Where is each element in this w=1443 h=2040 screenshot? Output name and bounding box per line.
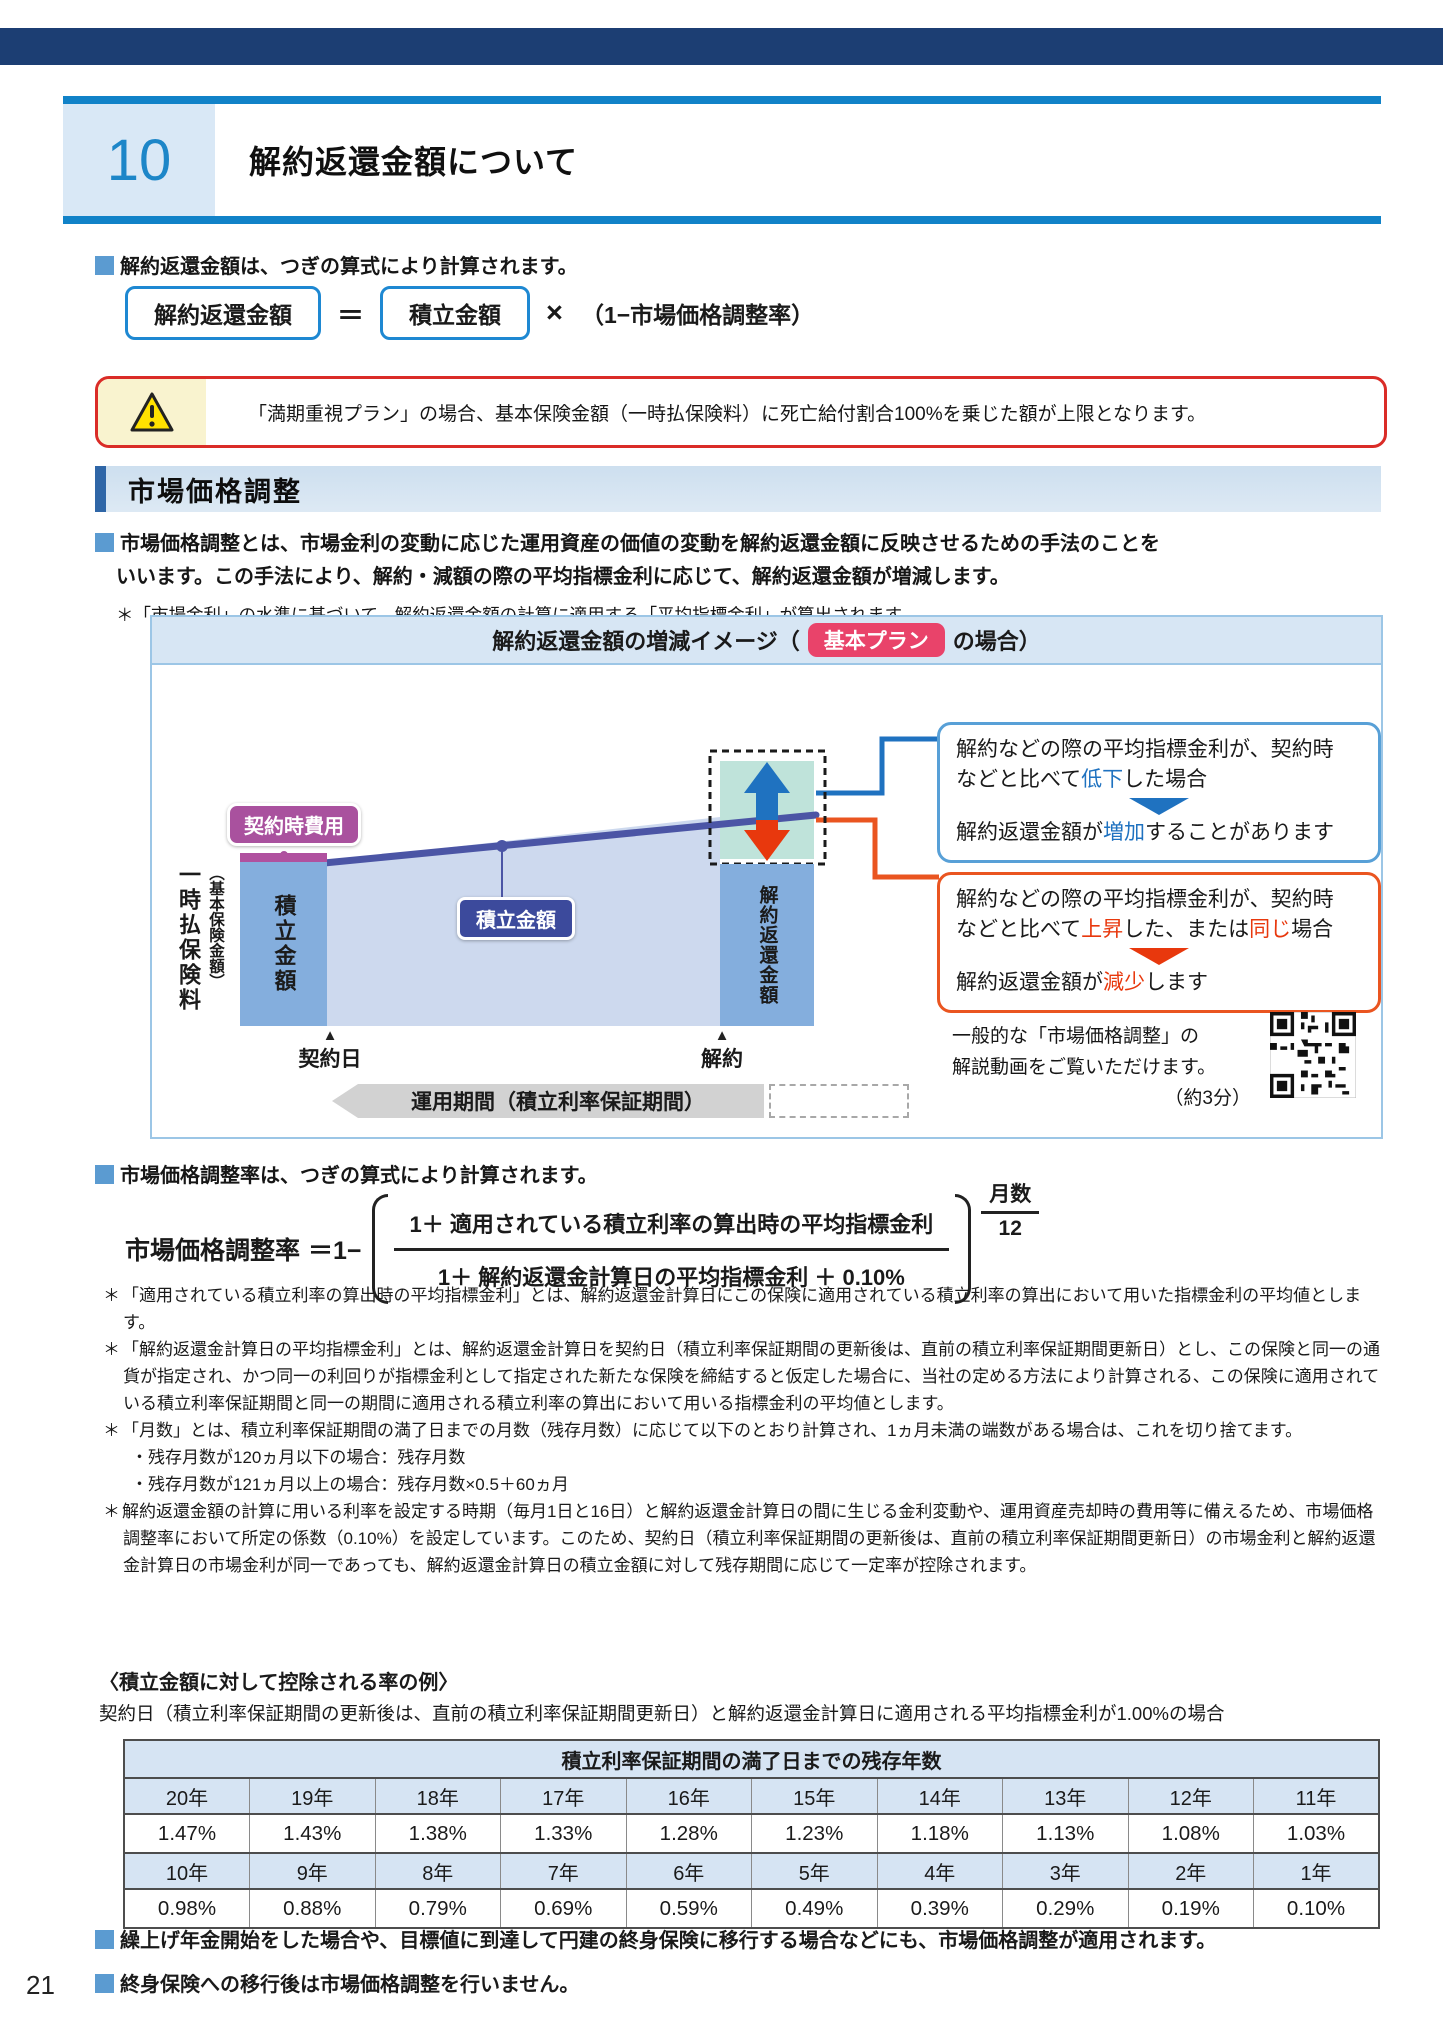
table-row: 10年 9年 8年 7年 6年 5年 4年 3年 2年 1年: [124, 1853, 1379, 1889]
mva-intro-line1: 市場価格調整とは、市場金利の変動に応じた運用資産の価値の変動を解約返還金額に反映…: [95, 528, 1381, 561]
chapter-number-box: 10: [63, 104, 215, 216]
notes-list: ＊「適用されている積立利率の算出時の平均指標金利」とは、解約返還金計算日にこの保…: [103, 1282, 1381, 1579]
formula-rhs-box: 積立金額: [380, 286, 530, 340]
table-cell: 0.29%: [1003, 1889, 1129, 1928]
footer-notes: 繰上げ年金開始をした場合や、目標値に到達して円建の終身保険に移行する場合などにも…: [95, 1926, 1216, 2014]
table-cell: 2年: [1128, 1853, 1254, 1889]
contract-cost-strip: [240, 853, 327, 862]
surrender-formula: 解約返還金額 ＝ 積立金額 × （1−市場価格調整率）: [125, 286, 814, 340]
note-item: ＊「月数」とは、積立利率保証期間の満了日までの月数（残存月数）に応じて以下のとお…: [103, 1417, 1381, 1498]
table-cell: 17年: [501, 1778, 627, 1814]
exponent-denominator: 12: [981, 1214, 1039, 1241]
rate-down-callout: 解約などの際の平均指標金利が、契約時 などと比べて低下した場合 解約返還金額が増…: [937, 722, 1381, 863]
formula-lhs-box: 解約返還金額: [125, 286, 321, 340]
contract-date-label: 契約日: [294, 1043, 366, 1073]
table-cell: 1.28%: [626, 1814, 752, 1853]
contract-date-triangle-icon: ▲: [294, 1028, 366, 1043]
note-item: ＊「適用されている積立利率の算出時の平均指標金利」とは、解約返還金計算日にこの保…: [103, 1282, 1381, 1336]
callout-up-result: 解約返還金額が減少します: [956, 968, 1362, 998]
rate-formula-intro-text: 市場価格調整率は、つぎの算式により計算されます。: [120, 1165, 598, 1187]
callout-down-result: 解約返還金額が増加することがあります: [956, 818, 1362, 848]
table-cell: 15年: [752, 1778, 878, 1814]
video-note-line1: 一般的な「市場価格調整」の: [952, 1021, 1257, 1052]
table-cell: 1.23%: [752, 1814, 878, 1853]
table-cell: 4年: [877, 1853, 1003, 1889]
note-item: ＊「解約返還金計算日の平均指標金利」とは、解約返還金計算日を契約日（積立利率保証…: [103, 1336, 1381, 1417]
up-arrow-shaft: [756, 791, 778, 820]
table-cell: 0.39%: [877, 1889, 1003, 1928]
premium-label: 一時払保険料: [172, 863, 204, 1033]
warning-triangle-icon: [129, 391, 175, 433]
period-dashed-extension: [769, 1084, 909, 1118]
video-note: 一般的な「市場価格調整」の 解説動画をご覧いただけます。 （約3分）: [952, 1021, 1257, 1114]
section-banner: 市場価格調整: [95, 466, 1381, 512]
callout-up-line1: 解約などの際の平均指標金利が、契約時: [956, 885, 1362, 915]
bullet-square-icon: [95, 1165, 114, 1184]
table-title-row: 積立利率保証期間の満了日までの残存年数: [124, 1740, 1379, 1778]
formula-tail: （1−市場価格調整率）: [581, 296, 814, 330]
bullet-square-icon: [95, 533, 114, 552]
warning-text: 「満期重視プラン」の場合、基本保険金額（一時払保険料）に死亡給付割合100%を乗…: [206, 379, 1384, 445]
table-cell: 3年: [1003, 1853, 1129, 1889]
account-bar-label: 積立金額: [268, 894, 300, 994]
intro-text: 解約返還金額は、つぎの算式により計算されます。: [120, 256, 578, 278]
table-cell: 1.33%: [501, 1814, 627, 1853]
rate-up-callout: 解約などの際の平均指標金利が、契約時 などと比べて上昇した、または同じ場合 解約…: [937, 872, 1381, 1013]
table-cell: 0.19%: [1128, 1889, 1254, 1928]
surrender-diagram: 解約返還金額の増減イメージ（ 基本プラン の場合）: [150, 615, 1383, 1139]
table-row: 1.47% 1.43% 1.38% 1.33% 1.28% 1.23% 1.18…: [124, 1814, 1379, 1853]
rate-formula-label: 市場価格調整率: [125, 1231, 300, 1267]
formula-multiply-sign: ×: [546, 297, 563, 330]
table-cell: 1.38%: [375, 1814, 501, 1853]
callout-down-line2: などと比べて低下した場合: [956, 765, 1362, 795]
warning-box: 「満期重視プラン」の場合、基本保険金額（一時払保険料）に死亡給付割合100%を乗…: [95, 376, 1387, 448]
contract-date-marker: ▲ 契約日: [294, 1028, 366, 1073]
note-item: ＊解約返還金額の計算に用いる利率を設定する時期（毎月1日と16日）と解約返還金計…: [103, 1498, 1381, 1579]
note-sub-item: ・残存月数が121ヵ月以上の場合：残存月数×0.5＋60ヵ月: [123, 1471, 1381, 1498]
callout-down-line1: 解約などの際の平均指標金利が、契約時: [956, 735, 1362, 765]
red-result-arrow-icon: [1129, 948, 1189, 965]
diagram-title-post: の場合）: [953, 624, 1041, 656]
table-row: 0.98% 0.88% 0.79% 0.69% 0.59% 0.49% 0.39…: [124, 1889, 1379, 1928]
table-title: 積立利率保証期間の満了日までの残存年数: [124, 1740, 1379, 1778]
diagram-body: 積立金額 解約返還金額 一時払保険料 （基本保険金額） 契約時費用 積立金額 ▲…: [152, 665, 1381, 1137]
table-cell: 19年: [250, 1778, 376, 1814]
table-cell: 12年: [1128, 1778, 1254, 1814]
table-cell: 9年: [250, 1853, 376, 1889]
bullet-square-icon: [95, 256, 114, 275]
rate-formula-equals: ＝1−: [308, 1231, 362, 1267]
account-value-badge: 積立金額: [457, 897, 575, 940]
red-callout-connector: [816, 820, 939, 877]
surrender-bar-label: 解約返還金額: [754, 885, 781, 1005]
table-cell: 0.88%: [250, 1889, 376, 1928]
footer-note-line: 繰上げ年金開始をした場合や、目標値に到達して円建の終身保険に移行する場合などにも…: [95, 1926, 1216, 1956]
note-sub-item: ・残存月数が120ヵ月以下の場合：残存月数: [123, 1444, 1381, 1471]
section-title: 市場価格調整: [128, 470, 302, 509]
table-cell: 14年: [877, 1778, 1003, 1814]
bullet-square-icon: [95, 1974, 114, 1993]
document-page: { "page_number": "21", "chapter": { "num…: [0, 0, 1443, 2040]
exponent-fraction: 月数 12: [981, 1178, 1039, 1241]
diagram-title: 解約返還金額の増減イメージ（ 基本プラン の場合）: [152, 617, 1381, 665]
premium-label-group: 一時払保険料 （基本保険金額）: [172, 863, 226, 1033]
contract-cost-badge: 契約時費用: [227, 803, 361, 846]
table-cell: 5年: [752, 1853, 878, 1889]
surrender-date-marker: ▲ 解約: [686, 1028, 758, 1073]
table-cell: 11年: [1254, 1778, 1380, 1814]
mva-intro-line2: いいます。この手法により、解約・減額の際の平均指標金利に応じて、解約返還金額が増…: [95, 561, 1381, 594]
bullet-square-icon: [95, 1930, 114, 1949]
table-cell: 1.08%: [1128, 1814, 1254, 1853]
table-cell: 1.13%: [1003, 1814, 1129, 1853]
callout-up-line2: などと比べて上昇した、または同じ場合: [956, 915, 1362, 945]
footer-note-line: 終身保険への移行後は市場価格調整を行いません。: [95, 1970, 1216, 2000]
mva-intro-text1: 市場価格調整とは、市場金利の変動に応じた運用資産の価値の変動を解約返還金額に反映…: [120, 533, 1160, 555]
table-cell: 16年: [626, 1778, 752, 1814]
video-note-line2: 解説動画をご覧いただけます。: [952, 1052, 1257, 1083]
premium-sub-label: （基本保険金額）: [204, 865, 226, 1033]
table-cell: 1.47%: [124, 1814, 250, 1853]
table-cell: 0.98%: [124, 1889, 250, 1928]
surrender-date-triangle-icon: ▲: [686, 1028, 758, 1043]
intro-line: 解約返還金額は、つぎの算式により計算されます。: [95, 250, 578, 279]
table-cell: 0.49%: [752, 1889, 878, 1928]
table-cell: 0.79%: [375, 1889, 501, 1928]
exponent-numerator: 月数: [981, 1178, 1039, 1214]
example-heading: 〈積立金額に対して控除される率の例〉: [99, 1666, 458, 1695]
chapter-number: 10: [107, 127, 172, 194]
table-cell: 18年: [375, 1778, 501, 1814]
table-cell: 20年: [124, 1778, 250, 1814]
table-cell: 0.59%: [626, 1889, 752, 1928]
qr-code: [1270, 1012, 1356, 1098]
investment-period-band: 運用期間（積立利率保証期間）: [332, 1084, 764, 1118]
rate-formula-intro: 市場価格調整率は、つぎの算式により計算されます。: [95, 1159, 598, 1188]
table-cell: 8年: [375, 1853, 501, 1889]
page-content: 10 解約返還金額について 解約返還金額は、つぎの算式により計算されます。 解約…: [63, 96, 1381, 2040]
table-cell: 1.18%: [877, 1814, 1003, 1853]
blue-callout-connector: [816, 739, 939, 793]
video-note-duration: （約3分）: [952, 1083, 1257, 1114]
table-cell: 1.03%: [1254, 1814, 1380, 1853]
fraction-numerator: 1＋ 適用されている積立利率の算出時の平均指標金利: [394, 1200, 950, 1251]
table-cell: 10年: [124, 1853, 250, 1889]
diagram-title-pre: 解約返還金額の増減イメージ（: [492, 624, 800, 656]
surrender-date-label: 解約: [686, 1043, 758, 1073]
chapter-header: 10 解約返還金額について: [63, 96, 1381, 224]
warning-icon-cell: [98, 379, 206, 445]
table-cell: 1年: [1254, 1853, 1380, 1889]
table-cell: 6年: [626, 1853, 752, 1889]
table-row: 20年 19年 18年 17年 16年 15年 14年 13年 12年 11年: [124, 1778, 1379, 1814]
table-cell: 7年: [501, 1853, 627, 1889]
deduction-rate-table: 積立利率保証期間の満了日までの残存年数 20年 19年 18年 17年 16年 …: [123, 1739, 1380, 1929]
blue-result-arrow-icon: [1129, 798, 1189, 815]
top-accent-bar: [0, 28, 1443, 65]
plan-badge: 基本プラン: [808, 623, 945, 657]
account-value-bar: 積立金額: [240, 862, 327, 1026]
example-description: 契約日（積立利率保証期間の更新後は、直前の積立利率保証期間更新日）と解約返還金計…: [99, 1700, 1224, 1726]
table-cell: 1.43%: [250, 1814, 376, 1853]
page-number: 21: [26, 1970, 55, 2001]
table-cell: 13年: [1003, 1778, 1129, 1814]
table-cell: 0.10%: [1254, 1889, 1380, 1928]
chapter-title: 解約返還金額について: [249, 137, 578, 183]
formula-equals: ＝: [337, 294, 364, 333]
surrender-value-bar: 解約返還金額: [720, 864, 814, 1026]
table-cell: 0.69%: [501, 1889, 627, 1928]
